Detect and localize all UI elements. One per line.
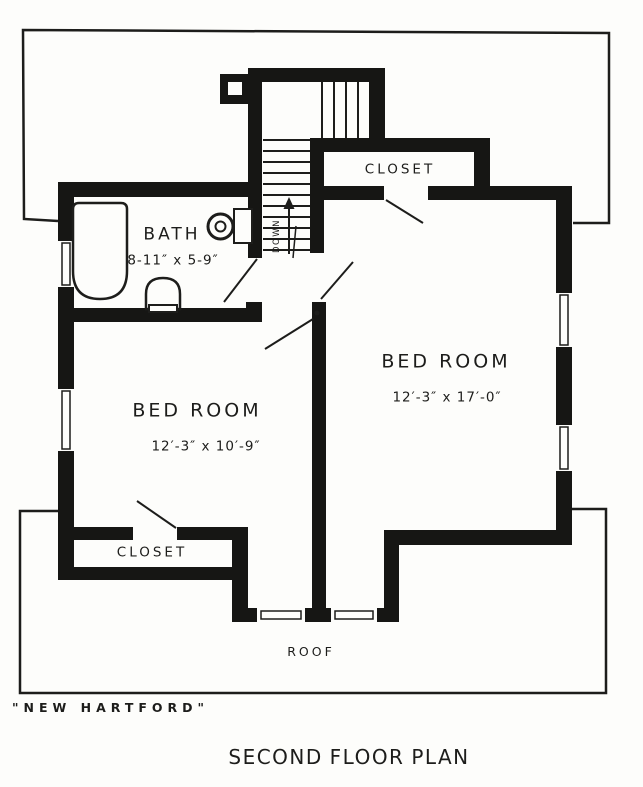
bath-dimensions: 8-11″ x 5-9″ (127, 254, 218, 268)
wall-hall-stub (310, 140, 324, 253)
door-opening-bottom-closet (133, 525, 177, 542)
window-gap (331, 606, 377, 624)
wall-right (556, 200, 572, 545)
floorplan-sheet: CLOSET BATH 8-11″ x 5-9″ BED ROOM 12′-3″… (0, 0, 643, 787)
bedroom-left-dimensions: 12′-3″ x 10′-9″ (151, 440, 260, 454)
roof-label: ROOF (287, 646, 335, 659)
door-opening-top-closet (384, 184, 428, 202)
sink-fixture (208, 209, 252, 243)
door-swing-top-closet (386, 200, 423, 223)
chimney-flue (228, 82, 242, 95)
door-swing-bedroom-left (265, 319, 313, 349)
bedroom-right-dimensions: 12′-3″ x 17′-0″ (392, 391, 501, 405)
arrow-head (284, 197, 295, 209)
bedroom-right-label: BED ROOM (381, 353, 510, 372)
door-swing-bedroom-right (321, 262, 353, 299)
toilet-fixture (146, 278, 180, 312)
bath-label: BATH (143, 227, 200, 244)
floor-plan-drawing (0, 0, 643, 787)
sink-bracket (234, 209, 252, 243)
wall-bath-door-jamb (246, 302, 262, 322)
window-gap (554, 293, 574, 347)
wall-bath-top (58, 182, 262, 197)
window-gap (56, 389, 76, 451)
stairs-down-label: DOWN (272, 219, 282, 253)
closet-bottom-label: CLOSET (117, 546, 187, 560)
sink-bowl-inner (216, 222, 226, 232)
window-bottom-left (257, 606, 305, 624)
chimney (220, 74, 250, 104)
wall-attic-right (369, 68, 385, 140)
wall-stair-top (248, 68, 385, 82)
window-gap (257, 606, 305, 624)
wall-closet-bottom (58, 567, 248, 580)
wall-bedroom-right-bottom (384, 530, 568, 545)
toilet-base (149, 305, 177, 312)
arrow-shaft-stroke (293, 226, 296, 258)
wall-bottom-right-connector (384, 530, 399, 622)
stairs-attic (322, 82, 358, 138)
window-bedroom-right-upper (554, 293, 574, 347)
bedroom-left-label: BED ROOM (132, 402, 261, 421)
house-name-caption: "NEW HARTFORD" (12, 700, 209, 715)
window-bedroom-right-lower (554, 425, 574, 471)
bathtub-fixture (73, 203, 127, 299)
closet-top-label: CLOSET (365, 163, 435, 177)
plan-title: SECOND FLOOR PLAN (228, 745, 469, 769)
door-hinge-dot (315, 311, 320, 316)
window-gap (554, 425, 574, 471)
window-bottom-right (331, 606, 377, 624)
wall-upper-horizontal (310, 186, 572, 200)
stairs-main (263, 140, 310, 250)
wall-bedroom-divider (312, 302, 326, 622)
wall-closet-top (310, 138, 490, 152)
window-bedroom-left (56, 389, 76, 451)
door-swing-bottom-closet (137, 501, 176, 528)
door-swing-bath (224, 259, 257, 302)
